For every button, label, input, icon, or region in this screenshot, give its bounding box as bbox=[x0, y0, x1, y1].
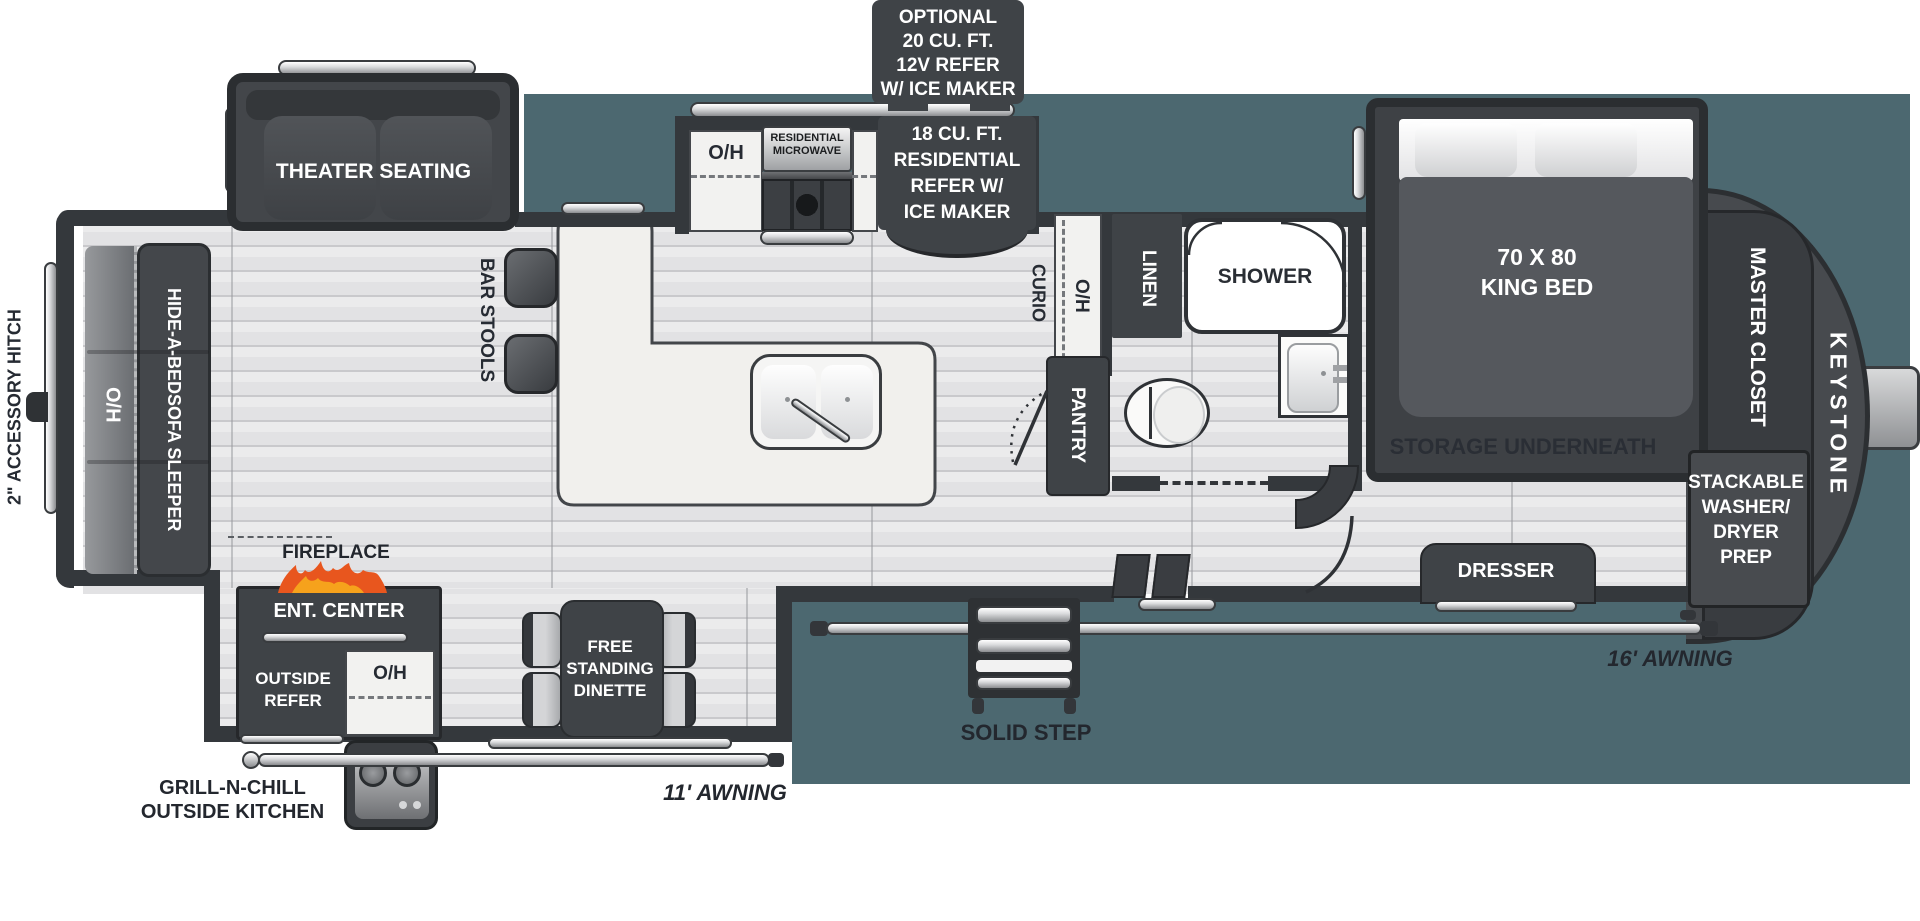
kitchen-sink bbox=[750, 354, 882, 450]
step-tread bbox=[976, 638, 1072, 654]
grill-line1: GRILL-N-CHILL bbox=[130, 776, 335, 800]
rear-oh-label: O/H bbox=[92, 380, 132, 430]
dresser-label: DRESSER bbox=[1420, 558, 1592, 584]
toilet bbox=[1124, 378, 1210, 448]
king-pin bbox=[1862, 366, 1920, 450]
awning-16-cap bbox=[1700, 621, 1718, 636]
kitchen-slide-wall-left bbox=[675, 116, 689, 234]
solid-step-frame bbox=[968, 598, 1080, 698]
bedroom-slide-topper bbox=[1352, 126, 1366, 200]
bath-pocket-door bbox=[1160, 481, 1268, 485]
shower-label: SHOWER bbox=[1192, 264, 1338, 290]
bar-stool bbox=[504, 334, 558, 394]
refer-line3: REFER W/ bbox=[878, 174, 1036, 200]
bar-stool bbox=[504, 248, 558, 308]
grill-n-chill-label: GRILL-N-CHILL OUTSIDE KITCHEN bbox=[130, 776, 335, 824]
dinette-line2: STANDING bbox=[560, 658, 660, 680]
step-leg bbox=[972, 698, 984, 714]
king-bed-line1: 70 X 80 bbox=[1390, 242, 1684, 272]
theater-seating-label: THEATER SEATING bbox=[247, 160, 500, 184]
refer-line1: 18 CU. FT. bbox=[878, 122, 1036, 148]
knob bbox=[413, 801, 421, 809]
toilet-seat bbox=[1153, 386, 1205, 444]
sink-bowl-left bbox=[761, 365, 816, 439]
awning-11-bar bbox=[258, 753, 770, 767]
dinette-line1: FREE bbox=[560, 636, 660, 658]
linen-label: LINEN bbox=[1134, 240, 1162, 316]
hide-a-bed-line2: SOFA SLEEPER bbox=[160, 394, 188, 531]
hide-a-bed-label: HIDE-A-BED SOFA SLEEPER bbox=[140, 330, 208, 490]
step-tread bbox=[976, 676, 1072, 690]
microwave-trim bbox=[762, 172, 852, 179]
wall-section-left bbox=[204, 570, 220, 742]
dinette-chair bbox=[522, 672, 562, 728]
optional-line3: 12V REFER bbox=[872, 54, 1024, 78]
washer-line1: STACKABLE bbox=[1688, 470, 1804, 495]
washer-line3: DRYER bbox=[1688, 520, 1804, 545]
awning-16-bar bbox=[826, 622, 1702, 635]
ent-center-shelf bbox=[262, 632, 408, 643]
outside-oh-dashed bbox=[349, 696, 431, 699]
optional-line1: OPTIONAL bbox=[872, 6, 1024, 30]
dinette-chair bbox=[522, 612, 562, 668]
step-leg bbox=[1064, 698, 1076, 714]
grill-line2: OUTSIDE KITCHEN bbox=[130, 800, 335, 824]
wall-bath-right bbox=[1348, 212, 1362, 480]
fireplace-label: FIREPLACE bbox=[276, 542, 396, 564]
refer-label: 18 CU. FT. RESIDENTIAL REFER W/ ICE MAKE… bbox=[878, 122, 1036, 226]
bar-stools-label: BAR STOOLS bbox=[472, 242, 500, 398]
refer-line2: RESIDENTIAL bbox=[878, 148, 1036, 174]
ent-center-label: ENT. CENTER bbox=[243, 598, 435, 624]
wall-rear bbox=[56, 210, 74, 588]
awning-16-label: 16' AWNING bbox=[1595, 646, 1745, 672]
sink-drain bbox=[785, 397, 790, 402]
rv-floorplan: 2" ACCESSORY HITCH O/H HIDE-A-BED SOFA S… bbox=[0, 0, 1920, 921]
awning-11-label: 11' AWNING bbox=[655, 780, 795, 806]
outside-oh-label: O/H bbox=[345, 662, 435, 686]
vanity-sink bbox=[1287, 343, 1339, 413]
microwave-label: RESIDENTIAL MICROWAVE bbox=[764, 132, 850, 158]
washer-line4: PREP bbox=[1688, 545, 1804, 570]
kitchen-counter-strip bbox=[852, 130, 878, 232]
optional-line2: 20 CU. FT. bbox=[872, 30, 1024, 54]
hide-a-bed-line1: HIDE-A-BED bbox=[160, 288, 188, 394]
pillow bbox=[1415, 123, 1517, 177]
pillow bbox=[1535, 123, 1637, 177]
entry-door-panel bbox=[1151, 554, 1190, 598]
refer-line4: ICE MAKER bbox=[878, 200, 1036, 226]
vanity-drain bbox=[1321, 371, 1326, 376]
king-bed-label: 70 X 80 KING BED bbox=[1390, 242, 1684, 302]
accessory-hitch-label: 2" ACCESSORY HITCH bbox=[2, 292, 28, 522]
master-closet-label: MASTER CLOSET bbox=[1742, 244, 1772, 430]
washer-line2: WASHER/ bbox=[1688, 495, 1804, 520]
optional-refer-label-text: OPTIONAL 20 CU. FT. 12V REFER W/ ICE MAK… bbox=[872, 6, 1024, 102]
kitchen-oh-label: O/H bbox=[691, 140, 761, 166]
wall-top-rear bbox=[58, 210, 234, 226]
dresser-handle bbox=[1435, 600, 1577, 612]
wall-section-right bbox=[776, 586, 792, 742]
storage-underneath-label: STORAGE UNDERNEATH bbox=[1373, 434, 1673, 460]
rear-bumper bbox=[44, 262, 58, 514]
microwave-line1: RESIDENTIAL bbox=[764, 132, 850, 145]
dinette-slide-topper bbox=[488, 737, 732, 749]
knob bbox=[399, 801, 407, 809]
optional-label-foot bbox=[970, 101, 1010, 111]
microwave-line2: MICROWAVE bbox=[764, 145, 850, 158]
pantry-label: PANTRY bbox=[1062, 378, 1092, 472]
sink-drain bbox=[845, 397, 850, 402]
step-tread bbox=[976, 606, 1072, 624]
awning-bracket bbox=[1680, 610, 1696, 620]
grill-shelf-bar bbox=[240, 734, 344, 744]
outside-refer-line1: OUTSIDE bbox=[243, 668, 343, 690]
range-front bbox=[760, 230, 854, 245]
curio-label: CURIO bbox=[1024, 254, 1052, 332]
fireplace-dash bbox=[228, 536, 332, 538]
awning-11-cap bbox=[768, 753, 784, 767]
theater-slide bbox=[227, 73, 519, 231]
wall-bath-bottom1 bbox=[1112, 476, 1160, 491]
vanity-faucet bbox=[1333, 365, 1347, 371]
keystone-label: KEYSTONE bbox=[1822, 312, 1854, 518]
hitch-knob bbox=[26, 392, 48, 422]
dinette-line3: DINETTE bbox=[560, 680, 660, 702]
outside-refer-line2: REFER bbox=[243, 690, 343, 712]
dinette-label: FREE STANDING DINETTE bbox=[560, 636, 660, 702]
entry-door-panel bbox=[1111, 554, 1150, 598]
hall-oh-label: O/H bbox=[1066, 266, 1096, 326]
range-cooktop bbox=[762, 179, 852, 231]
optional-line4: W/ ICE MAKER bbox=[872, 78, 1024, 102]
solid-step-label: SOLID STEP bbox=[950, 720, 1102, 746]
optional-label-foot bbox=[888, 101, 928, 111]
step-tread bbox=[976, 660, 1072, 672]
door-grab-handle bbox=[1138, 598, 1216, 611]
grab-handle bbox=[561, 202, 645, 215]
toilet-seam bbox=[1149, 387, 1152, 439]
bath-vanity bbox=[1278, 334, 1350, 418]
king-bed-line2: KING BED bbox=[1390, 272, 1684, 302]
hall-oh-dashed bbox=[1062, 220, 1065, 368]
outside-refer-label: OUTSIDE REFER bbox=[243, 668, 343, 712]
washer-label: STACKABLE WASHER/ DRYER PREP bbox=[1688, 470, 1804, 570]
vanity-faucet bbox=[1333, 377, 1347, 383]
